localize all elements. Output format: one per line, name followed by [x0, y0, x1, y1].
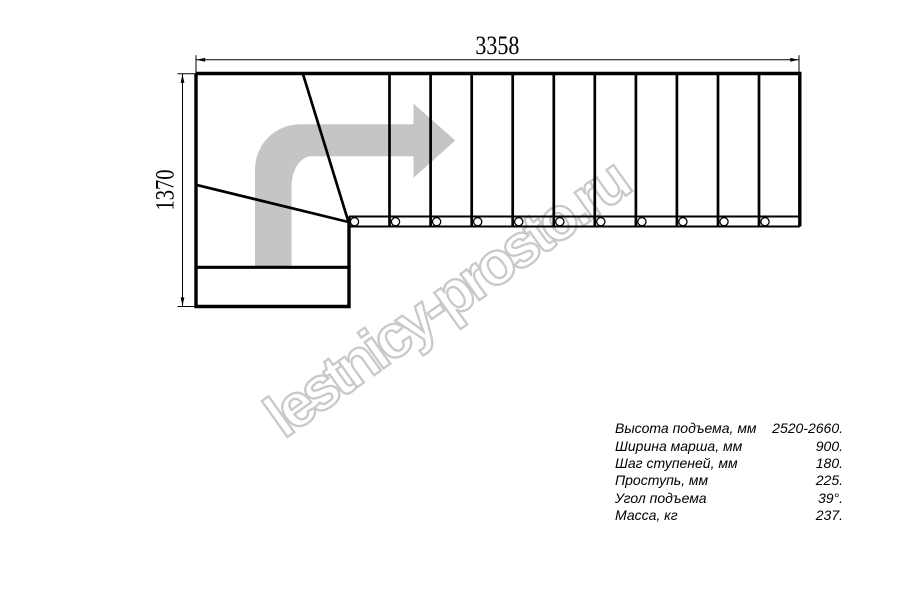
- svg-text:3358: 3358: [475, 31, 519, 60]
- svg-text:1370: 1370: [151, 170, 180, 211]
- svg-text:lestnicy-prosto.ru: lestnicy-prosto.ru: [252, 146, 640, 450]
